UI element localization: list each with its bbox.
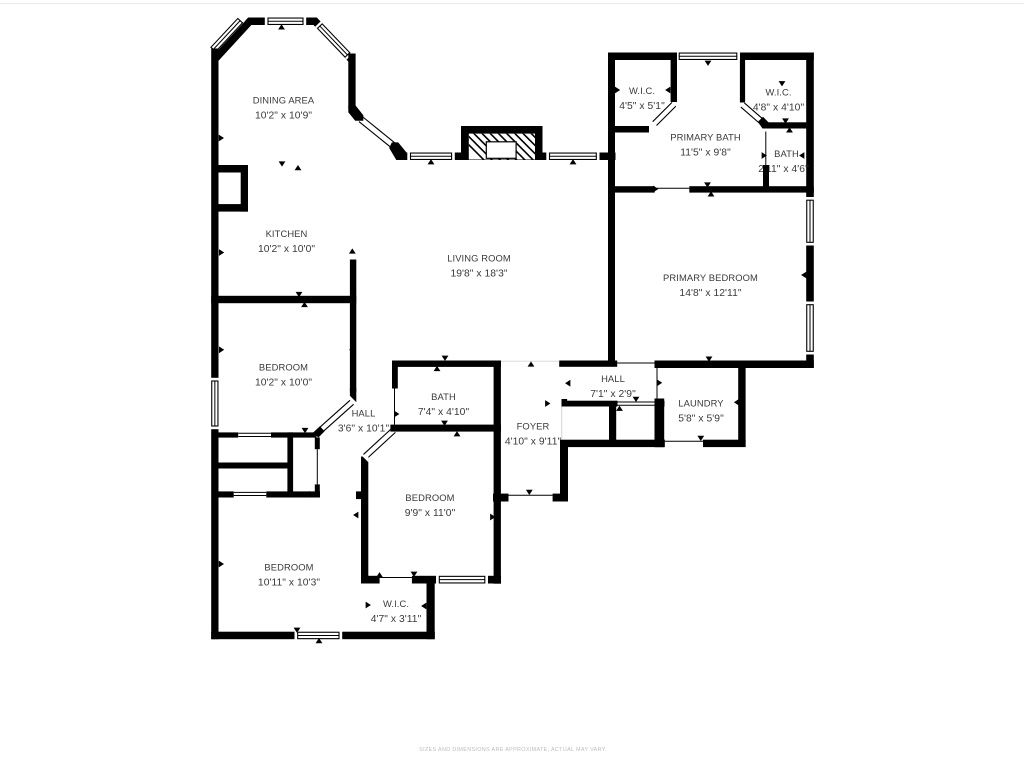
svg-text:14'8" x 12'11": 14'8" x 12'11" [679, 288, 741, 299]
svg-text:7'4" x 4'10": 7'4" x 4'10" [418, 407, 470, 418]
svg-text:7'1" x 2'9": 7'1" x 2'9" [590, 389, 636, 400]
svg-text:10'2" x 10'0": 10'2" x 10'0" [258, 244, 315, 255]
svg-text:BEDROOM: BEDROOM [259, 361, 308, 372]
svg-text:4'5" x 5'1": 4'5" x 5'1" [619, 101, 665, 112]
svg-text:10'2" x 10'0": 10'2" x 10'0" [255, 377, 312, 388]
svg-text:W.I.C.: W.I.C. [383, 598, 409, 609]
svg-text:KITCHEN: KITCHEN [266, 228, 308, 239]
svg-text:9'9" x 11'0": 9'9" x 11'0" [405, 508, 456, 519]
svg-text:DINING AREA: DINING AREA [253, 95, 315, 106]
svg-text:PRIMARY BATH: PRIMARY BATH [670, 131, 741, 142]
svg-text:PRIMARY BEDROOM: PRIMARY BEDROOM [663, 272, 758, 283]
svg-text:HALL: HALL [352, 407, 376, 418]
svg-text:19'8" x 18'3": 19'8" x 18'3" [450, 268, 507, 279]
svg-text:4'10" x 9'11": 4'10" x 9'11" [505, 436, 562, 447]
svg-text:W.I.C.: W.I.C. [765, 87, 791, 98]
svg-text:10'11" x 10'3": 10'11" x 10'3" [258, 577, 320, 588]
svg-text:10'2" x 10'9": 10'2" x 10'9" [255, 111, 312, 122]
svg-text:LAUNDRY: LAUNDRY [678, 398, 724, 409]
svg-text:4'8" x 4'10": 4'8" x 4'10" [753, 103, 805, 114]
svg-text:FOYER: FOYER [517, 420, 550, 431]
svg-text:BATH: BATH [774, 148, 799, 159]
svg-text:SIZES AND DIMENSIONS ARE APPRO: SIZES AND DIMENSIONS ARE APPROXIMATE, AC… [419, 747, 607, 753]
svg-text:HALL: HALL [601, 373, 625, 384]
svg-text:BEDROOM: BEDROOM [405, 492, 454, 503]
svg-text:4'7" x 3'11": 4'7" x 3'11" [371, 614, 422, 625]
svg-text:LIVING ROOM: LIVING ROOM [447, 252, 511, 263]
svg-text:W.I.C.: W.I.C. [629, 85, 655, 96]
svg-text:BEDROOM: BEDROOM [264, 561, 313, 572]
svg-text:5'8" x 5'9": 5'8" x 5'9" [678, 414, 724, 425]
svg-text:BATH: BATH [431, 391, 456, 402]
svg-text:11'5" x 9'8": 11'5" x 9'8" [680, 147, 731, 158]
svg-text:3'6" x 10'1": 3'6" x 10'1" [338, 423, 390, 434]
